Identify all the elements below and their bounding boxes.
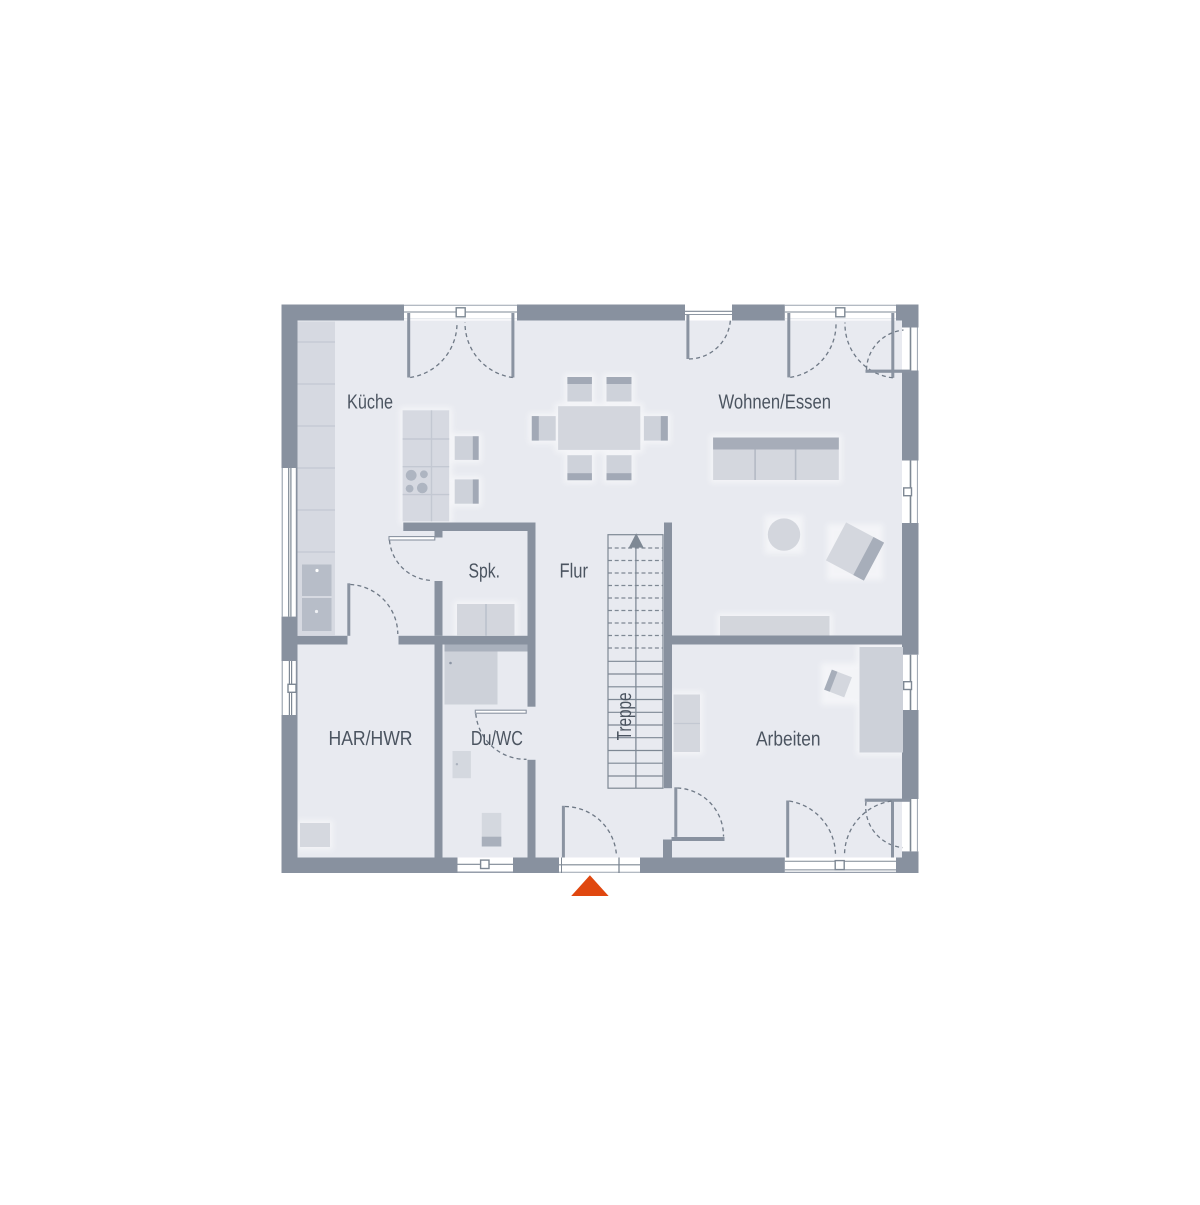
svg-text:Wohnen/Essen: Wohnen/Essen: [719, 391, 832, 413]
svg-text:Du/WC: Du/WC: [471, 728, 523, 750]
svg-text:HAR/HWR: HAR/HWR: [329, 728, 413, 750]
svg-text:Treppe: Treppe: [614, 692, 636, 740]
svg-text:Arbeiten: Arbeiten: [756, 729, 821, 751]
svg-text:Küche: Küche: [347, 391, 393, 413]
svg-text:Spk.: Spk.: [469, 561, 501, 583]
svg-text:Flur: Flur: [560, 561, 589, 583]
